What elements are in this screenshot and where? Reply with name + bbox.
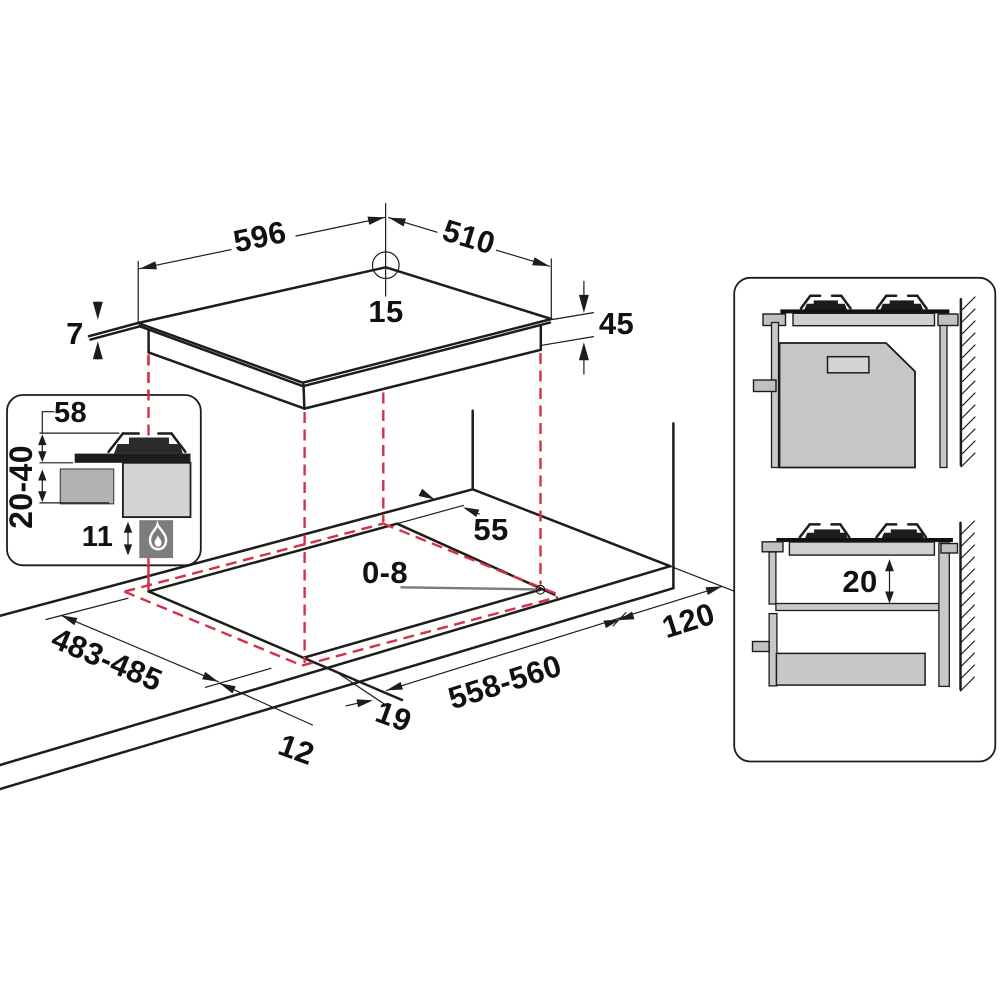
svg-text:7: 7 <box>66 316 84 351</box>
svg-text:15: 15 <box>368 294 403 329</box>
svg-text:45: 45 <box>599 306 634 341</box>
svg-text:20: 20 <box>842 564 877 599</box>
svg-text:0-8: 0-8 <box>362 555 408 590</box>
svg-text:20-40: 20-40 <box>3 445 39 529</box>
svg-text:55: 55 <box>473 512 508 547</box>
svg-text:11: 11 <box>82 521 113 553</box>
svg-text:58: 58 <box>54 397 87 429</box>
